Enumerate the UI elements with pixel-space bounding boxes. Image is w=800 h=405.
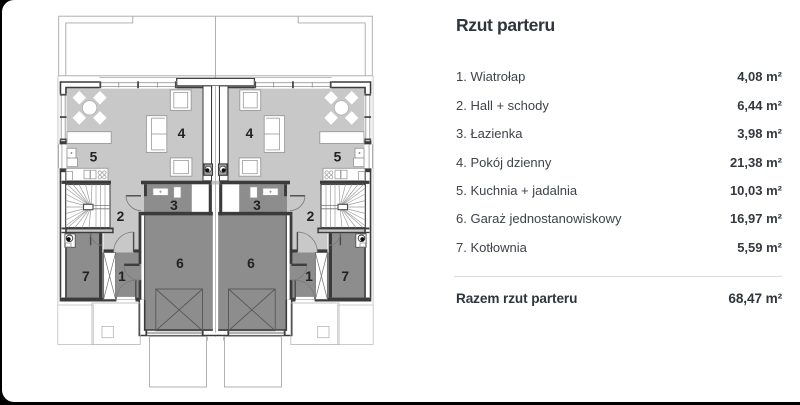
svg-text:5: 5 <box>90 150 98 165</box>
svg-text:7: 7 <box>82 269 90 284</box>
svg-text:1: 1 <box>305 269 313 284</box>
svg-text:1: 1 <box>118 269 126 284</box>
svg-text:3: 3 <box>170 198 178 213</box>
svg-text:5: 5 <box>334 150 342 165</box>
svg-text:2: 2 <box>117 209 125 224</box>
svg-text:3: 3 <box>253 198 261 213</box>
svg-text:6: 6 <box>247 256 255 271</box>
svg-text:2: 2 <box>307 209 315 224</box>
svg-text:4: 4 <box>246 126 254 141</box>
svg-text:4: 4 <box>178 126 186 141</box>
svg-text:6: 6 <box>176 256 184 271</box>
svg-text:7: 7 <box>341 269 349 284</box>
